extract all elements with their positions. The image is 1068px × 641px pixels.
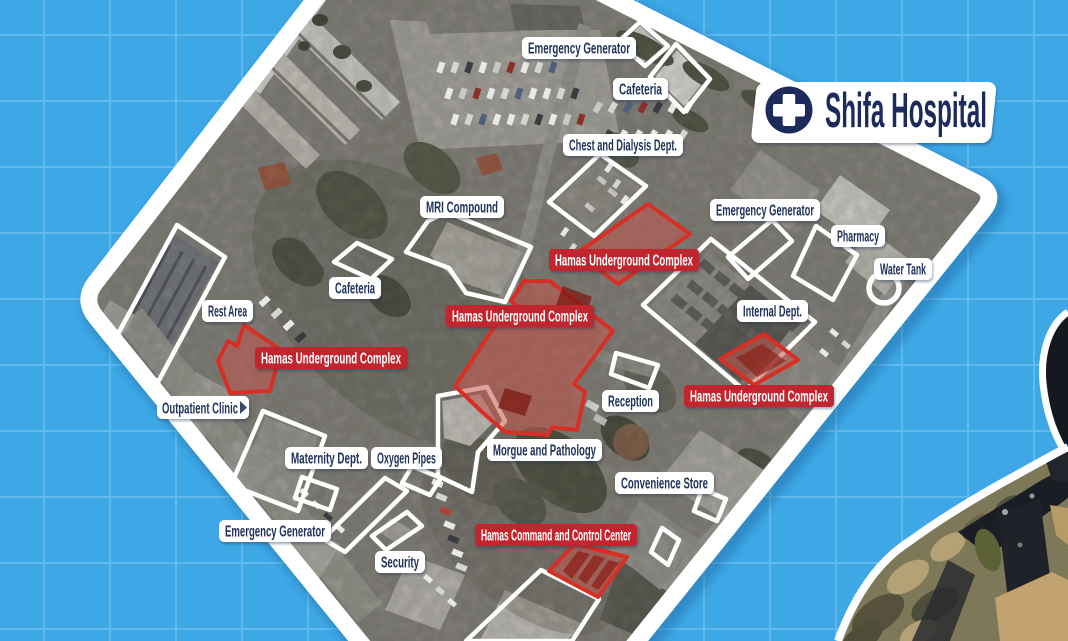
svg-text:Emergency Generator: Emergency Generator [528,41,630,58]
svg-text:Cafeteria: Cafeteria [619,82,662,99]
svg-text:Water Tank: Water Tank [880,262,926,279]
svg-text:Oxygen Pipes: Oxygen Pipes [377,451,436,468]
svg-text:Outpatient Clinic: Outpatient Clinic [162,401,238,418]
svg-text:Pharmacy: Pharmacy [837,229,879,246]
svg-text:Hamas Underground Complex: Hamas Underground Complex [452,309,588,326]
svg-text:MRI Compound: MRI Compound [426,200,498,217]
svg-text:Security: Security [381,555,419,572]
svg-text:Hamas Underground Complex: Hamas Underground Complex [261,351,401,368]
svg-text:Morgue and Pathology: Morgue and Pathology [493,443,596,460]
svg-text:Chest and Dialysis Dept.: Chest and Dialysis Dept. [569,138,677,155]
svg-text:Internal Dept.: Internal Dept. [743,304,802,321]
svg-text:Rest Area: Rest Area [208,304,247,321]
svg-text:Hamas Underground Complex: Hamas Underground Complex [690,389,828,406]
svg-text:Hamas Command and Control Cent: Hamas Command and Control Center [481,528,631,545]
svg-text:Maternity Dept.: Maternity Dept. [291,451,362,468]
svg-text:Emergency Generator: Emergency Generator [716,203,814,220]
svg-text:Emergency Generator: Emergency Generator [225,524,325,541]
svg-text:Reception: Reception [608,394,653,411]
svg-text:Shifa Hospital: Shifa Hospital [825,84,987,138]
svg-text:Hamas Underground Complex: Hamas Underground Complex [555,253,693,270]
svg-text:Convenience Store: Convenience Store [621,476,708,493]
svg-text:Cafeteria: Cafeteria [335,281,375,298]
